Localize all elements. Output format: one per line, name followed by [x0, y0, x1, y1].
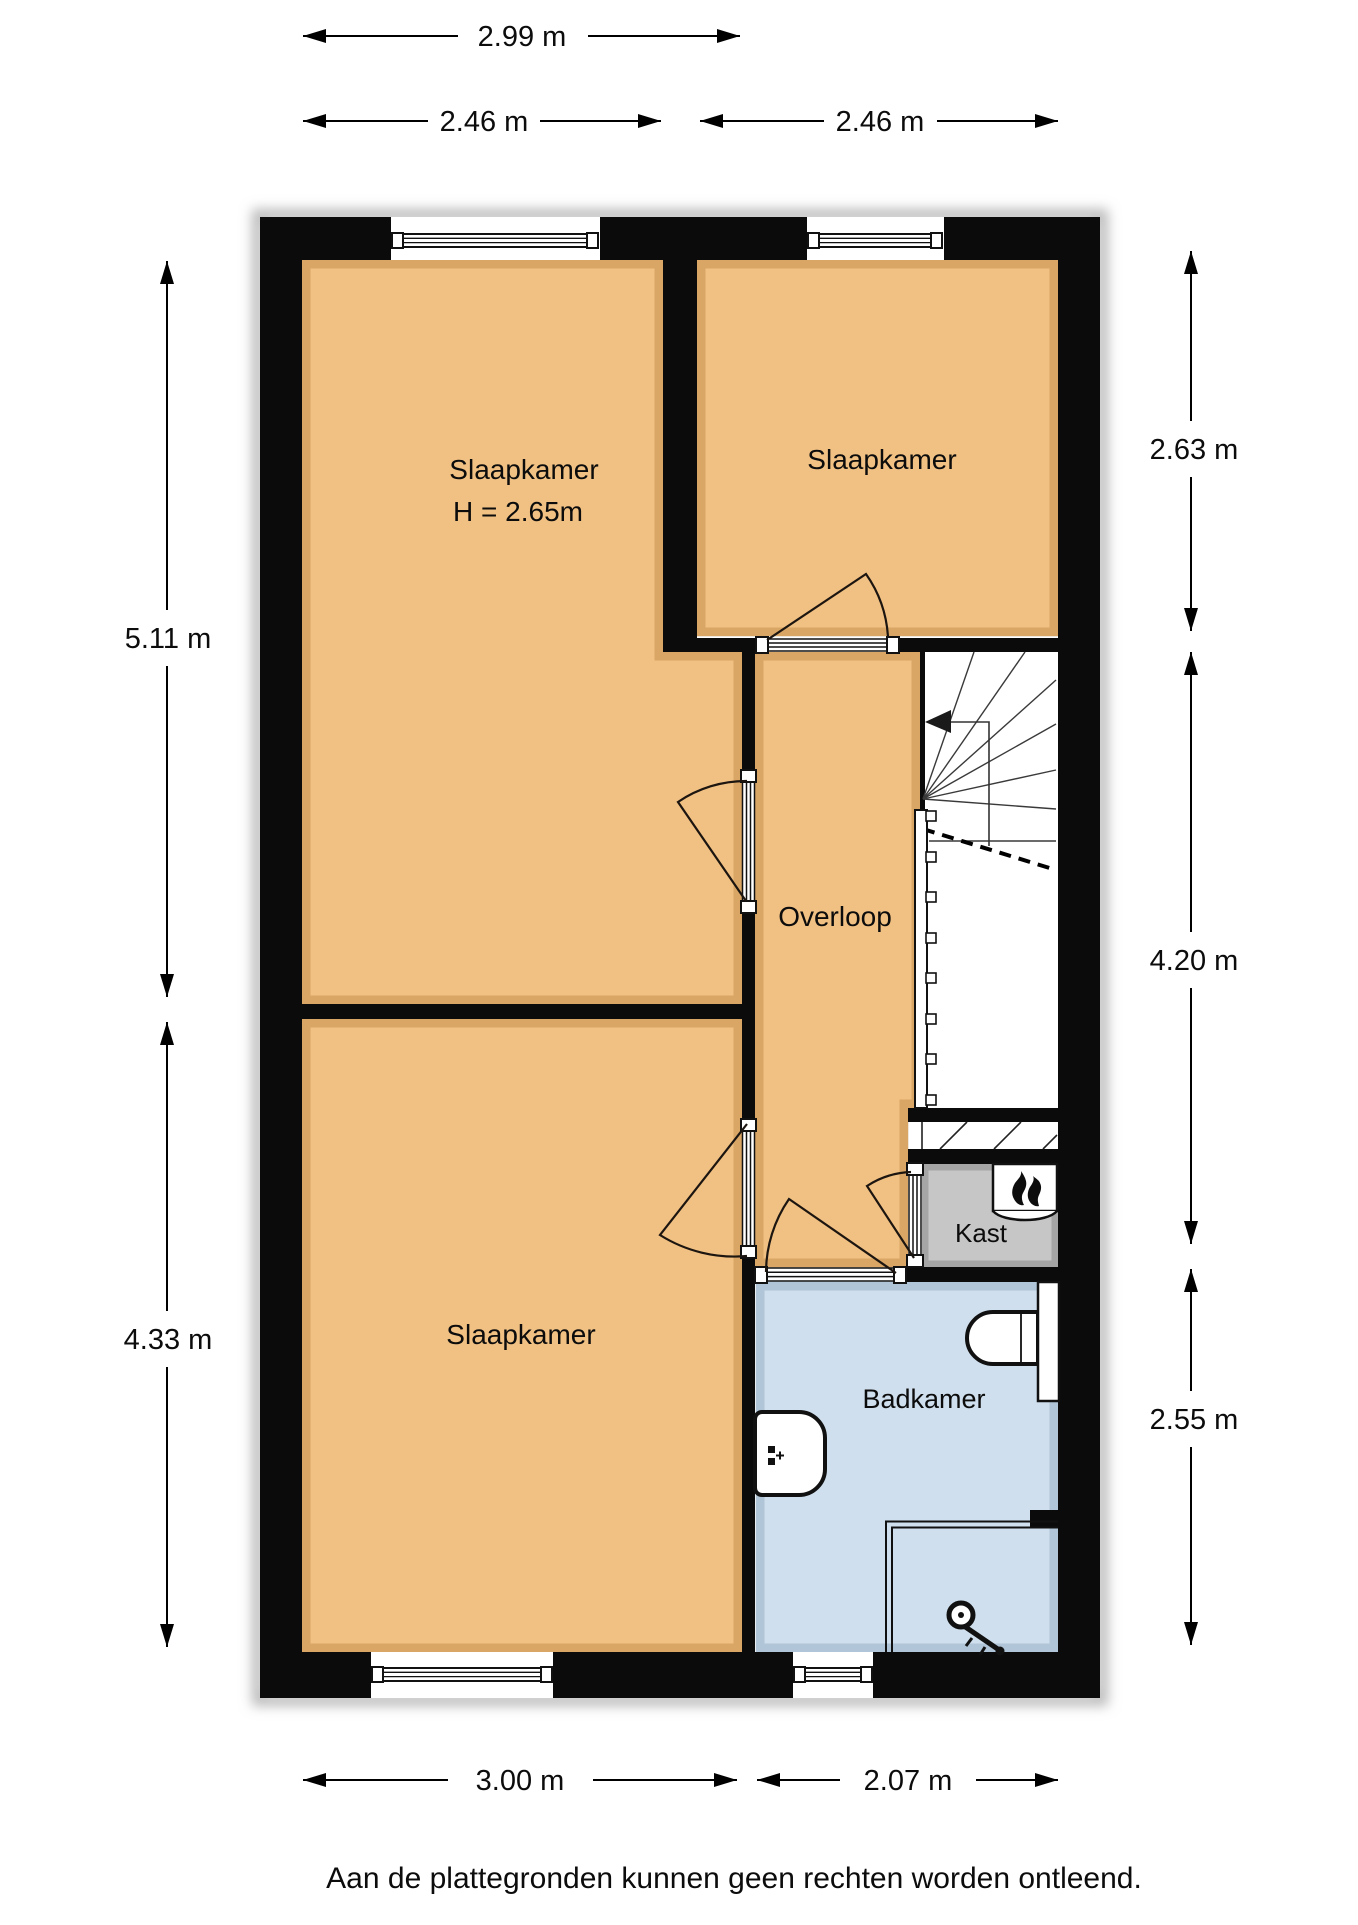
svg-text:4.20 m: 4.20 m	[1150, 945, 1239, 977]
svg-text:Slaapkamer: Slaapkamer	[807, 444, 956, 475]
svg-text:2.46 m: 2.46 m	[440, 106, 529, 138]
svg-text:Overloop: Overloop	[778, 901, 892, 932]
svg-text:H = 2.65m: H = 2.65m	[453, 496, 583, 527]
svg-text:2.63 m: 2.63 m	[1150, 434, 1239, 466]
svg-text:Slaapkamer: Slaapkamer	[446, 1319, 595, 1350]
svg-text:Badkamer: Badkamer	[862, 1384, 985, 1414]
svg-text:2.99 m: 2.99 m	[478, 21, 567, 53]
svg-text:2.46 m: 2.46 m	[836, 106, 925, 138]
svg-text:3.00 m: 3.00 m	[476, 1765, 565, 1797]
svg-text:Kast: Kast	[955, 1218, 1008, 1248]
svg-text:4.33 m: 4.33 m	[124, 1324, 213, 1356]
svg-text:Slaapkamer: Slaapkamer	[449, 454, 598, 485]
svg-text:5.11 m: 5.11 m	[125, 623, 212, 655]
svg-text:2.07 m: 2.07 m	[864, 1765, 953, 1797]
svg-text:Aan de plattegronden kunnen ge: Aan de plattegronden kunnen geen rechten…	[326, 1862, 1142, 1895]
svg-text:2.55 m: 2.55 m	[1150, 1404, 1239, 1436]
